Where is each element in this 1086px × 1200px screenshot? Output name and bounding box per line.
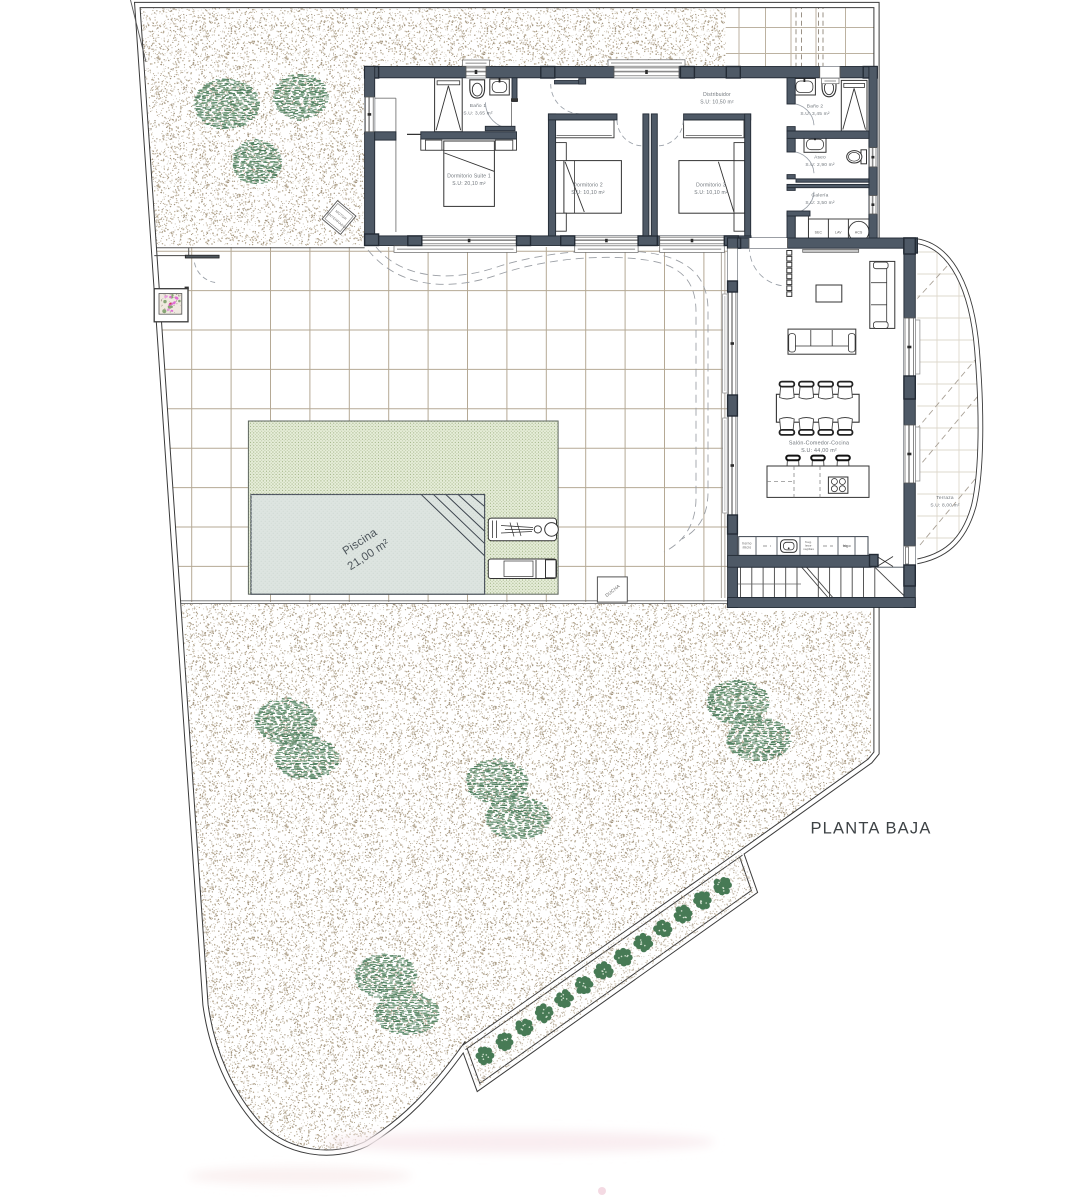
svg-text:S.U: 20,10 m²: S.U: 20,10 m²: [452, 181, 486, 187]
svg-text:S.U: 3,50 m²: S.U: 3,50 m²: [805, 200, 835, 206]
svg-text:S.U: 3,45 m²: S.U: 3,45 m²: [800, 111, 830, 117]
svg-text:LAV: LAV: [835, 231, 842, 235]
svg-text:SEC: SEC: [815, 231, 823, 235]
svg-text:frigo: frigo: [843, 544, 851, 548]
svg-text:vajillas: vajillas: [803, 547, 814, 551]
svg-text:Distribuidor: Distribuidor: [703, 92, 731, 98]
svg-text:Baño 1: Baño 1: [470, 103, 487, 109]
svg-text:Terraza: Terraza: [936, 495, 954, 501]
svg-text:ACS: ACS: [855, 230, 863, 234]
svg-text:Dormitorio Suite 1: Dormitorio Suite 1: [447, 174, 491, 180]
svg-text:Dormitorio 3: Dormitorio 3: [696, 183, 726, 189]
svg-text:S.U: 10,10 m²: S.U: 10,10 m²: [571, 190, 605, 196]
svg-text:S.U: 10,50 m²: S.U: 10,50 m²: [700, 99, 734, 105]
svg-text:S.U: 8,00 m²: S.U: 8,00 m²: [930, 502, 960, 508]
svg-text:Aseo: Aseo: [814, 155, 826, 161]
svg-text:micro: micro: [743, 546, 752, 550]
svg-text:Galería: Galería: [811, 193, 828, 199]
svg-text:S.U: 10,10 m²: S.U: 10,10 m²: [694, 190, 728, 196]
svg-text:Salón-Comedor-Cocina: Salón-Comedor-Cocina: [789, 441, 849, 447]
svg-text:Dormitorio 2: Dormitorio 2: [573, 183, 603, 189]
svg-text:S.U: 3,65 m²: S.U: 3,65 m²: [463, 110, 493, 116]
svg-text:Baño 2: Baño 2: [807, 104, 824, 110]
svg-text:S.U: 44,00 m²: S.U: 44,00 m²: [801, 448, 837, 454]
svg-text:S.U: 2,90 m²: S.U: 2,90 m²: [805, 162, 835, 168]
